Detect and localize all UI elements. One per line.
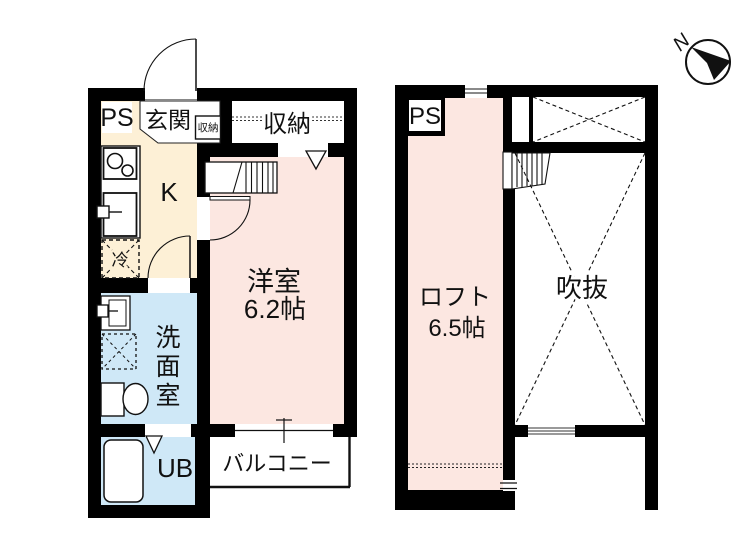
entrance-door-arc	[144, 39, 196, 91]
closet-label: 収納	[263, 111, 311, 138]
loft-size-label: 6.5帖	[428, 315, 485, 342]
room-door-opening	[197, 197, 210, 240]
washroom-label-char3: 室	[155, 382, 180, 410]
loft-top-window-icon	[465, 85, 487, 98]
fridge-label: 冷	[112, 251, 129, 270]
vanity-sink-icon	[97, 296, 130, 330]
entrance-label: 玄関	[145, 107, 191, 133]
washroom-label-char1: 洗	[155, 324, 180, 352]
kitchen-label: K	[160, 177, 178, 207]
void-label: 吹抜	[556, 273, 608, 303]
floorplan-canvas: PS 玄関 収納 収納 K 冷 洋室 6.2帖 洗 面 室 UB バルコニー	[0, 0, 750, 550]
kitchen-faucet-icon	[97, 206, 109, 218]
2f-wall-right	[645, 85, 658, 510]
bath-door-opening	[145, 424, 191, 437]
stairs-1f-icon	[205, 162, 277, 193]
ps-label-1f: PS	[100, 104, 133, 132]
balcony-label: バルコニー	[222, 451, 332, 476]
entrance-storage-label: 収納	[198, 121, 219, 134]
bathtub-icon	[104, 440, 143, 502]
unit-bath-label: UB	[157, 453, 193, 483]
niche-opening	[512, 97, 529, 142]
room-label: 洋室	[247, 267, 301, 297]
floorplan-drawing: PS 玄関 収納 収納 K 冷 洋室 6.2帖 洗 面 室 UB バルコニー	[0, 0, 750, 550]
ps-label-2f: PS	[409, 103, 441, 130]
compass-icon: N	[669, 29, 731, 84]
room-size-label: 6.2帖	[244, 294, 306, 324]
floorplan-2f: PS ロフト 6.5帖 吹抜	[395, 85, 658, 510]
washroom-label-char2: 面	[155, 353, 180, 381]
void-bottom-window-icon	[528, 425, 575, 437]
loft-label: ロフト	[419, 284, 491, 311]
entrance-door-opening	[145, 88, 197, 101]
room-door-leaf	[210, 197, 250, 201]
toilet-icon	[101, 383, 148, 416]
void-closet-area	[533, 97, 645, 142]
kitchen-washroom-opening	[148, 278, 190, 293]
stairs-2f-icon	[503, 152, 550, 189]
floorplan-1f: PS 玄関 収納 収納 K 冷 洋室 6.2帖 洗 面 室 UB バルコニー	[88, 39, 357, 518]
